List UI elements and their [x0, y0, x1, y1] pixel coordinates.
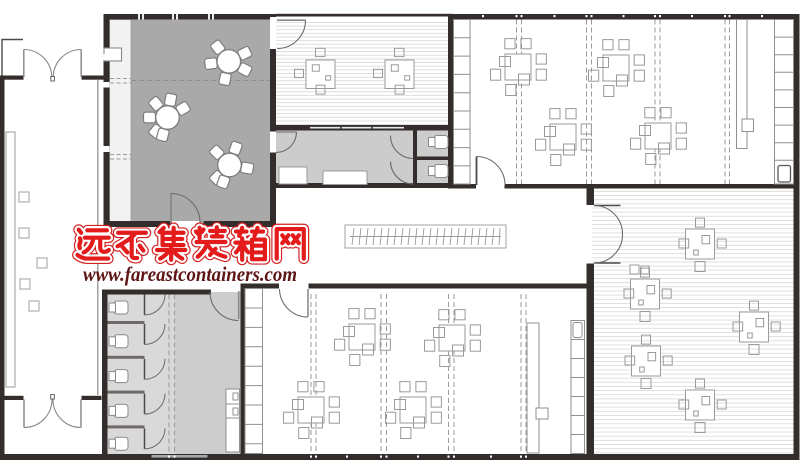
svg-text:www.fareastcontainers.com: www.fareastcontainers.com: [83, 262, 297, 286]
